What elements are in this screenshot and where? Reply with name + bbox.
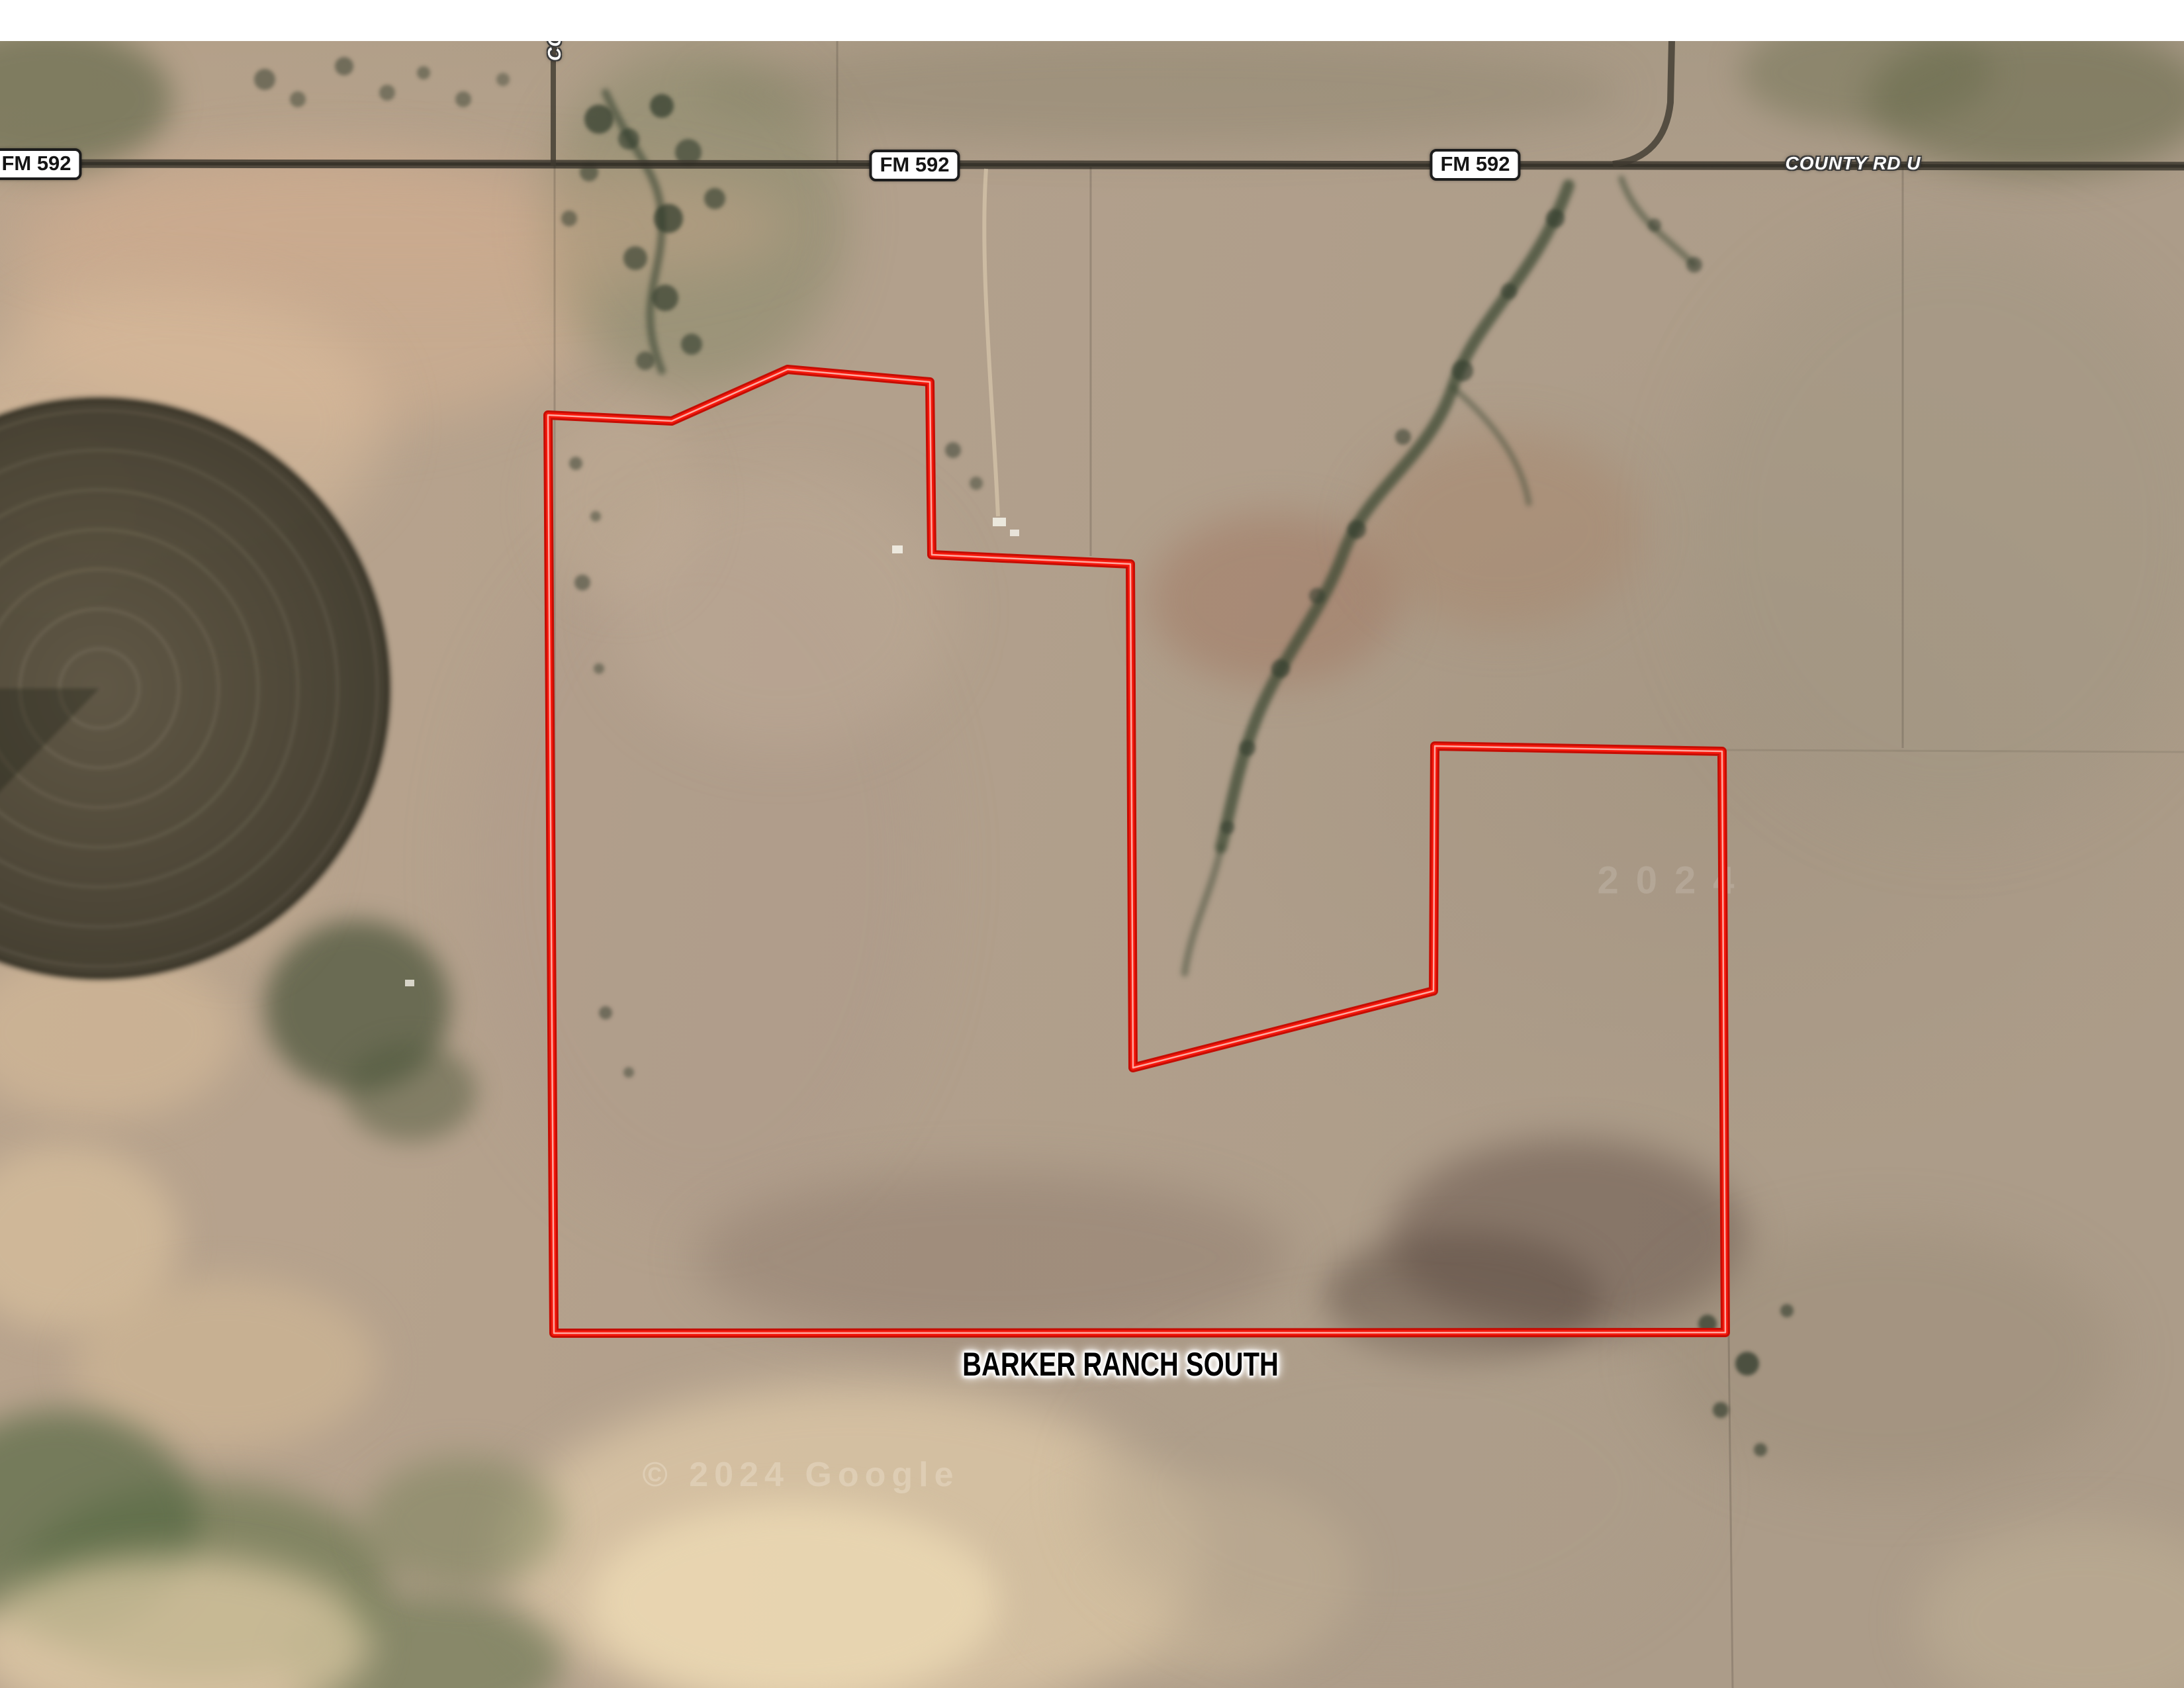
field-lines <box>555 41 2184 1688</box>
map-overlay-graphics <box>0 0 2184 1688</box>
road-shield-fm592-west: FM 592 <box>0 148 82 180</box>
road-shield-fm592-center: FM 592 <box>869 150 960 181</box>
map-flyer-screenshot: © 2024 Google 2024 FM 592 FM 592 FM 592 … <box>0 0 2184 1688</box>
buildings <box>405 518 1019 986</box>
top-white-margin <box>0 0 2184 41</box>
road-shield-fm592-east: FM 592 <box>1430 149 1520 181</box>
property-title: BARKER RANCH SOUTH <box>962 1345 1279 1383</box>
satellite-map: © 2024 Google 2024 FM 592 FM 592 FM 592 … <box>0 0 2184 1688</box>
road-fm592-north-curve <box>1613 41 1672 164</box>
creek-vegetation-layer <box>606 93 1694 973</box>
property-boundary-line <box>548 369 1725 1333</box>
pivot-irrigation-circle <box>0 399 389 978</box>
roads-layer <box>0 41 2184 516</box>
road-label-county-rd-u: COUNTY RD U <box>1786 153 1921 174</box>
tree-dots <box>254 57 1794 1456</box>
driveway-path <box>984 169 998 516</box>
